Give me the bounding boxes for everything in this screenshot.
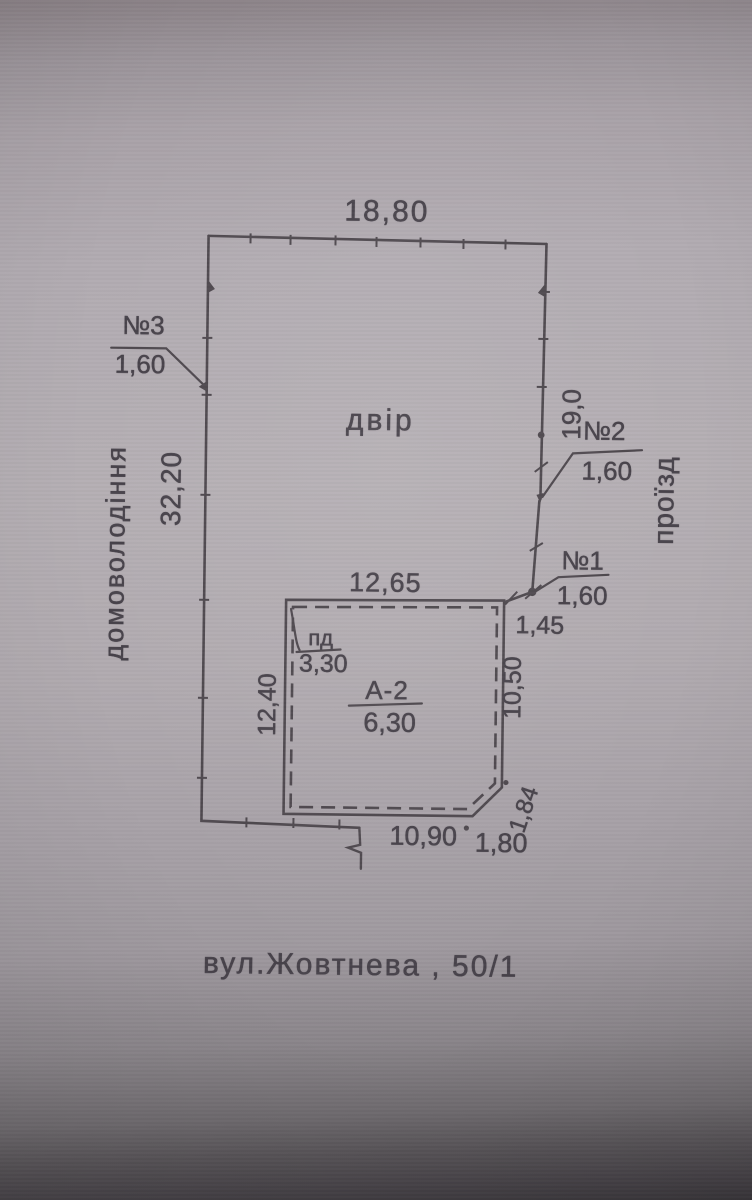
dim-building-left: 12,40 <box>255 673 281 736</box>
street-address: вул.Жовтнева , 50/1 <box>203 949 519 983</box>
dim-building-bottom-right: 1,80 <box>475 830 528 858</box>
boundary-ticks <box>196 233 550 832</box>
label-annex: пд <box>308 627 333 649</box>
dim-plot-left: 32,20 <box>157 451 186 526</box>
marker-3-value: 1,60 <box>115 351 166 378</box>
marker-2-id: №2 <box>583 417 626 444</box>
building-designation: А-2 <box>365 677 409 704</box>
dim-plot-right-upper: 19,0 <box>558 389 585 440</box>
marker-2-value: 1,60 <box>581 457 632 484</box>
label-driveway: проїзд <box>650 456 679 545</box>
boundary-break-symbol <box>348 828 361 869</box>
plan-sheet: 18,80 №3 1,60 домоволодіння 32,20 двір 1… <box>0 0 752 1200</box>
dim-building-right: 10,50 <box>500 656 526 719</box>
label-homestead: домоволодіння <box>101 445 131 661</box>
dim-building-top: 12,65 <box>349 569 422 597</box>
dim-plot-top: 18,80 <box>344 197 429 228</box>
corner-marks <box>205 280 546 503</box>
building-value: 6,30 <box>363 709 416 737</box>
dim-gap-ne: 1,45 <box>515 613 564 639</box>
marker-1-id: №1 <box>561 547 604 574</box>
marker-1-value: 1,60 <box>557 582 608 609</box>
marker-3-id: №3 <box>122 312 165 339</box>
dim-annex: 3,30 <box>299 652 348 678</box>
dim-building-bottom: 10,90 <box>389 823 457 851</box>
label-yard: двір <box>346 406 415 437</box>
scanned-site-plan-photo: 18,80 №3 1,60 домоволодіння 32,20 двір 1… <box>0 0 752 1200</box>
